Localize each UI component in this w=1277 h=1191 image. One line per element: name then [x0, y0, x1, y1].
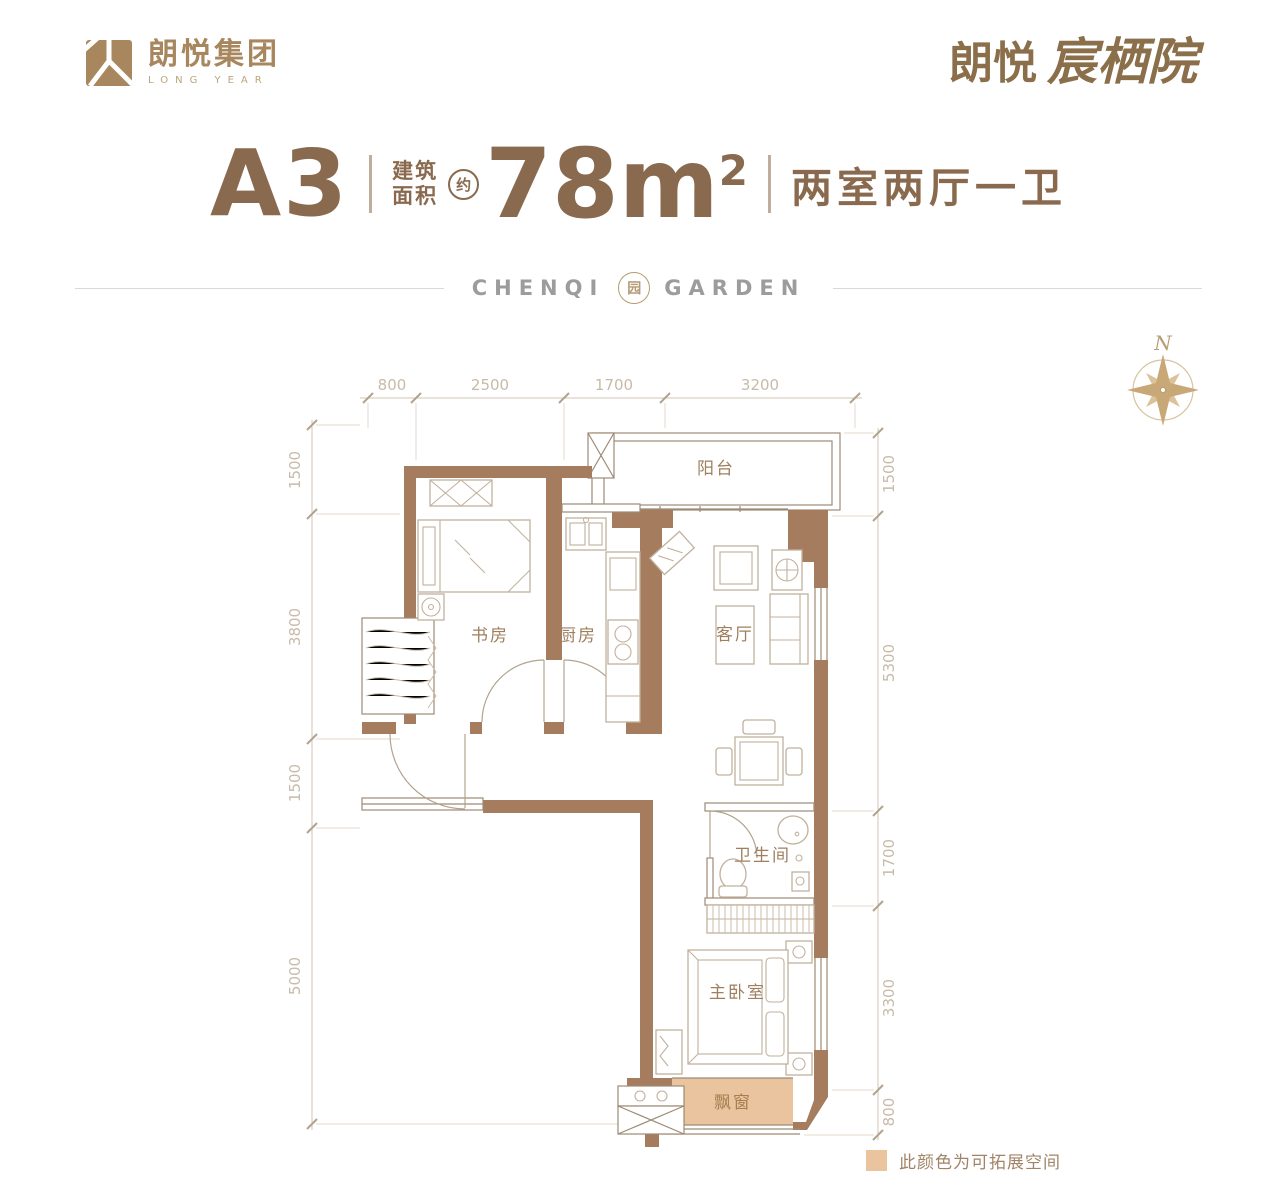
approx-badge: 约: [448, 169, 479, 200]
developer-name: 朗悦集团: [148, 38, 280, 72]
dining-chair: [786, 748, 802, 775]
brand-seal-icon: 园: [618, 272, 650, 304]
compass-rose-icon: N: [1127, 331, 1199, 426]
brand-words: CHENQI 园 GARDEN: [472, 272, 806, 304]
unit-code: A3: [210, 138, 349, 230]
room-label-bathroom: 卫生间: [734, 846, 791, 866]
room-label-bay-window: 飘窗: [714, 1093, 752, 1113]
svg-text:1700: 1700: [880, 839, 898, 877]
room-label-balcony: 阳台: [697, 459, 735, 479]
svg-text:3200: 3200: [741, 376, 779, 394]
project-logo: 朗悦 宸栖院: [949, 32, 1197, 92]
svg-text:1500: 1500: [286, 451, 304, 489]
area-number: 78m: [485, 138, 719, 230]
hallway-closet: [707, 905, 814, 933]
side-table: [714, 546, 758, 590]
legend-swatch: [866, 1150, 887, 1171]
sofa: [770, 594, 808, 664]
svg-text:5000: 5000: [286, 957, 304, 995]
water-heater: [792, 872, 809, 891]
divider-line-left: [75, 288, 444, 289]
equipment-platform-bottom: [618, 1086, 684, 1134]
svg-text:2500: 2500: [471, 376, 509, 394]
legend-text: 此颜色为可拓展空间: [899, 1148, 1061, 1173]
wardrobe: [430, 480, 492, 506]
svg-text:1700: 1700: [595, 376, 633, 394]
brand-word-left: CHENQI: [472, 276, 605, 300]
svg-text:1500: 1500: [286, 764, 304, 802]
room-label-master-bedroom: 主卧室: [709, 983, 766, 1003]
developer-logo: 朗悦集团 LONG YEAR: [84, 34, 280, 90]
doors: [390, 660, 757, 858]
svg-text:1500: 1500: [880, 455, 898, 493]
svg-text:800: 800: [880, 1098, 898, 1127]
dining-chair: [716, 748, 732, 775]
bathroom-room: 卫生间: [719, 816, 809, 897]
nightstand: [786, 1053, 812, 1075]
svg-text:5300: 5300: [880, 644, 898, 682]
compass-north-label: N: [1153, 331, 1173, 355]
study-door-swing: [482, 660, 544, 722]
bath-sink: [778, 816, 808, 844]
unit-title-block: A3 建筑 面积 约 78m 2 两室两厅一卫: [0, 138, 1277, 230]
divider-line-right: [833, 288, 1202, 289]
dining-area: [716, 720, 802, 785]
brand-word-right: GARDEN: [664, 276, 805, 300]
developer-tagline: LONG YEAR: [148, 75, 280, 86]
equipment-platform-left: [362, 618, 436, 714]
kitchen-room: 厨房: [559, 518, 640, 723]
study-room: 书房: [418, 480, 530, 646]
legend: 此颜色为可拓展空间: [866, 1148, 1061, 1173]
title-separator-2: [768, 155, 771, 213]
room-label-living: 客厅: [716, 625, 754, 645]
project-name: 宸栖院: [1047, 32, 1197, 92]
area-prefix: 建筑 面积: [392, 159, 438, 209]
title-separator: [369, 155, 372, 213]
master-bedroom-room: 主卧室: [656, 941, 812, 1075]
room-label-study: 书房: [471, 626, 509, 646]
dining-chair: [743, 720, 775, 734]
svg-text:3800: 3800: [286, 608, 304, 646]
room-label-kitchen: 厨房: [559, 626, 597, 646]
balcony: 阳台: [588, 433, 840, 512]
floorplan-poster: 朗悦集团 LONG YEAR 朗悦 宸栖院 A3 建筑 面积 约 78m 2 两…: [0, 0, 1277, 1191]
area-exponent: 2: [719, 146, 748, 195]
layout-summary: 两室两厅一卫: [791, 154, 1067, 214]
living-room: 客厅: [650, 531, 808, 664]
svg-text:3300: 3300: [880, 979, 898, 1017]
svg-text:800: 800: [378, 376, 407, 394]
project-brand: 朗悦: [949, 36, 1037, 92]
double-bed: [688, 950, 788, 1064]
dining-table: [735, 737, 783, 785]
nightstand: [786, 941, 812, 963]
brand-divider: CHENQI 园 GARDEN: [75, 272, 1202, 304]
developer-logo-icon: [84, 34, 136, 90]
